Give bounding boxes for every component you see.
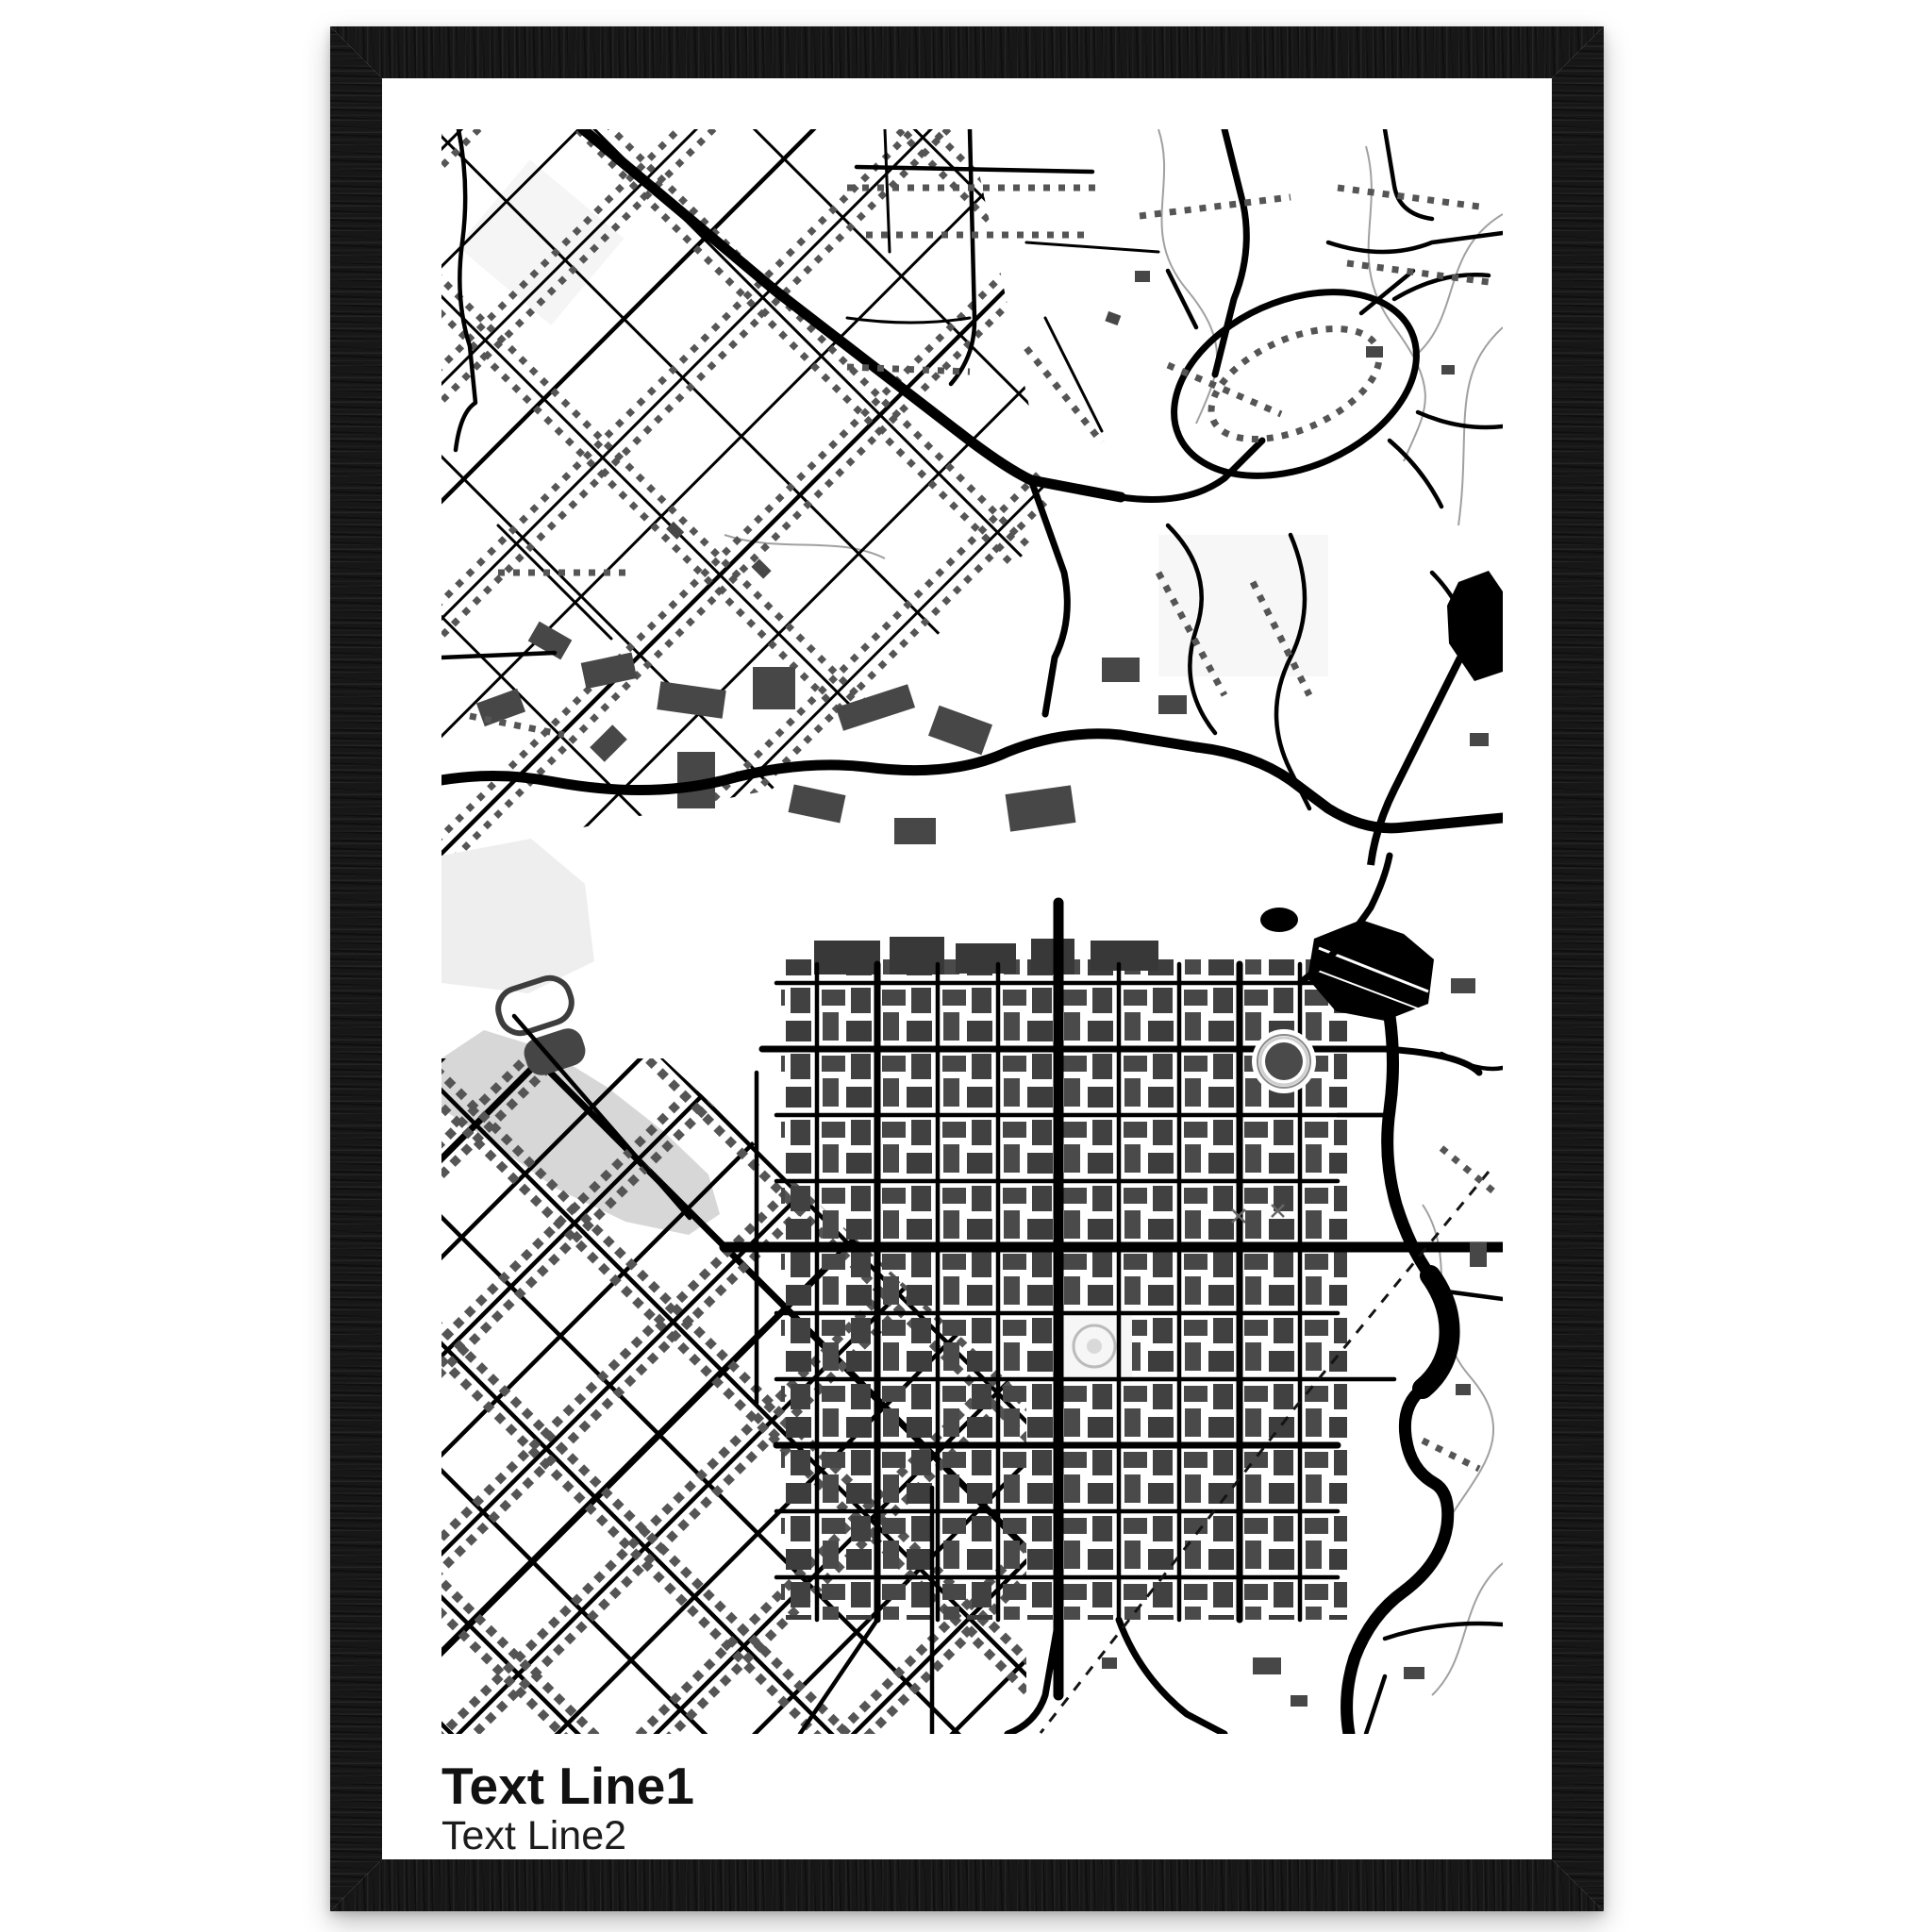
poster-mat: Text Line1 Text Line2 — [382, 78, 1552, 1859]
parks-layer — [441, 159, 1328, 993]
frame-left-bar — [330, 26, 382, 1911]
poster-caption: Text Line1 Text Line2 — [441, 1759, 694, 1858]
frame-bottom-bar — [330, 1859, 1604, 1911]
city-map — [441, 129, 1503, 1734]
poster-title-line2: Text Line2 — [441, 1814, 694, 1858]
frame-top-bar — [330, 26, 1604, 78]
product-mockup: Text Line1 Text Line2 — [0, 0, 1932, 1932]
frame-right-bar — [1552, 26, 1604, 1911]
poster-title-line1: Text Line1 — [441, 1759, 694, 1814]
poster-frame: Text Line1 Text Line2 — [330, 26, 1604, 1911]
